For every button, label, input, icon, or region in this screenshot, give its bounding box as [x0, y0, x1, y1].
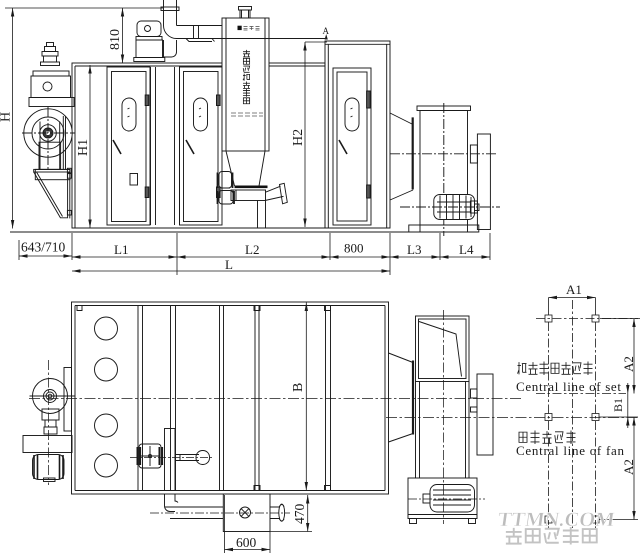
svg-text:810: 810 [108, 29, 123, 50]
svg-text:600: 600 [236, 535, 257, 550]
svg-text:B: B [291, 383, 306, 392]
svg-text:L3: L3 [407, 242, 421, 257]
svg-text:L2: L2 [245, 242, 259, 257]
svg-text:A1: A1 [566, 282, 582, 297]
svg-text:643/710: 643/710 [21, 240, 66, 255]
svg-text:H: H [0, 112, 14, 122]
svg-text:Central line of fan: Central line of fan [516, 443, 625, 458]
svg-text:B1: B1 [611, 398, 625, 412]
svg-text:A2: A2 [621, 356, 636, 372]
svg-text:470: 470 [292, 504, 307, 525]
svg-text:L1: L1 [114, 242, 128, 257]
svg-text:Central line of set: Central line of set [516, 379, 621, 394]
svg-text:H1: H1 [76, 139, 91, 156]
svg-text:L4: L4 [459, 242, 474, 257]
svg-text:H2: H2 [291, 129, 306, 146]
svg-text:A: A [323, 26, 330, 36]
svg-text:TTMN.COM: TTMN.COM [496, 509, 616, 531]
svg-text:800: 800 [344, 241, 364, 256]
svg-text:A2: A2 [621, 459, 636, 475]
svg-text:L: L [225, 257, 233, 272]
